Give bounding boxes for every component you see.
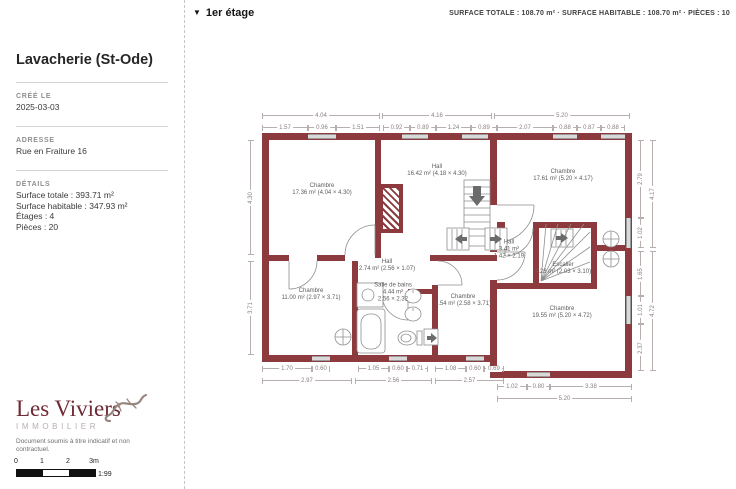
- dimension: 0.60: [466, 368, 484, 369]
- created-label: CRÉÉ LE: [16, 93, 168, 100]
- page-title: Lavacherie (St-Ode): [16, 52, 168, 68]
- dimension: 0.89: [410, 127, 436, 128]
- wall-segment: [597, 245, 625, 251]
- detail-line: Surface totale : 393.71 m²: [16, 190, 168, 201]
- room-label: Chambre9.54 m² (2.58 × 3.71): [435, 294, 491, 308]
- dimension: 1.05: [358, 368, 389, 369]
- dimension: 0.71: [407, 368, 428, 369]
- arrow-left-icon: [455, 234, 467, 244]
- details-list: Surface totale : 393.71 m²Surface habita…: [16, 190, 168, 232]
- window: [389, 356, 407, 361]
- vent-symbol: [551, 229, 573, 247]
- floor-selector[interactable]: ▼1er étage: [193, 7, 254, 19]
- dimension: 4.30: [250, 140, 251, 255]
- window: [601, 134, 625, 139]
- gecko-icon: [102, 391, 152, 425]
- room-label: Chambre11.00 m² (2.97 × 3.71): [281, 288, 340, 302]
- wall-segment: [490, 140, 497, 205]
- window: [312, 356, 330, 361]
- detail-line: Pièces : 20: [16, 222, 168, 233]
- dimension: 5.20: [497, 398, 632, 399]
- room-label: Hall2.74 m² (2.56 × 1.07): [359, 259, 415, 273]
- room-label: Salle de bains4.44 m²2.56 × 2.32: [374, 283, 412, 304]
- dimension: 0.60: [389, 368, 407, 369]
- wall-segment: [432, 255, 438, 261]
- dimension: 1.01: [640, 296, 641, 324]
- detail-line: Surface habitable : 347.93 m²: [16, 201, 168, 212]
- scale-tick: 3m: [89, 458, 99, 465]
- agency-logo: Les Viviers IMMOBILIER: [16, 397, 121, 431]
- surface-summary: SURFACE TOTALE : 108.70 m² · SURFACE HAB…: [449, 10, 730, 17]
- room-label: Hall16.42 m² (4.18 × 4.30): [407, 164, 467, 178]
- wall-segment: [533, 222, 595, 228]
- dimension: 0.88: [553, 127, 577, 128]
- arrow-right-icon: [556, 233, 568, 243]
- dimension: 2.56: [355, 380, 432, 381]
- dimension: 1.65: [640, 251, 641, 296]
- room-label: Chambre17.61 m² (5.20 × 4.17): [533, 169, 593, 183]
- dimension: 2.79: [640, 140, 641, 218]
- wall-segment: [490, 280, 497, 362]
- wall-segment: [430, 255, 497, 261]
- dimension: 0.89: [471, 127, 497, 128]
- wall-segment: [352, 261, 358, 355]
- wall-segment: [591, 222, 597, 283]
- window: [626, 218, 631, 248]
- scale-ticks: 0123m: [16, 458, 136, 467]
- dimension: 2.07: [497, 127, 553, 128]
- dimension: 1.51: [336, 127, 380, 128]
- room-label: Hall3.41 m²1.42 × 2.19: [494, 240, 524, 261]
- wall-segment: [262, 133, 269, 362]
- dimension: 1.70: [262, 368, 312, 369]
- vent-symbol: [447, 228, 469, 250]
- bathtub: [357, 309, 385, 353]
- dimension: 2.37: [640, 324, 641, 371]
- disclaimer-text: Document soumis à titre indicatif et non…: [16, 438, 148, 454]
- wall-segment: [497, 222, 505, 228]
- dimension: 2.57: [435, 380, 504, 381]
- chimney-shaft: [379, 184, 403, 233]
- window: [527, 372, 550, 377]
- toilet: [398, 331, 422, 345]
- door-arc: [345, 225, 375, 255]
- details-label: DÉTAILS: [16, 181, 168, 188]
- scale-bar-graphic: [16, 469, 96, 477]
- dimension: 1.24: [436, 127, 471, 128]
- divider: [16, 126, 168, 127]
- floor-label: 1er étage: [206, 7, 254, 19]
- wall-segment: [269, 255, 289, 261]
- window: [553, 134, 577, 139]
- top-bar: ▼1er étage SURFACE TOTALE : 108.70 m² · …: [185, 0, 736, 26]
- dimension: 0.96: [308, 127, 336, 128]
- dimension: 1.08: [435, 368, 466, 369]
- dimension: 1.57: [262, 127, 308, 128]
- room-label: Chambre19.55 m² (5.20 × 4.72): [532, 306, 592, 320]
- wall-segment: [625, 133, 632, 378]
- scale-tick: 0: [14, 458, 18, 465]
- dimension: 5.20: [494, 115, 630, 116]
- room-label: Escalier4.28 m² (2.03 × 3.10): [535, 262, 591, 276]
- dimension: 0.69: [484, 368, 504, 369]
- door-arc: [289, 261, 317, 289]
- dimension: 2.97: [262, 380, 352, 381]
- divider: [16, 82, 168, 83]
- scale-bar: 0123m 1:99: [16, 458, 136, 488]
- dimension: 0.60: [312, 368, 330, 369]
- window: [466, 356, 484, 361]
- dimension: 3.71: [250, 261, 251, 355]
- dimension: 0.88: [601, 127, 625, 128]
- sidebar: Lavacherie (St-Ode) CRÉÉ LE 2025-03-03 A…: [0, 0, 185, 489]
- dimension: 4.17: [652, 140, 653, 248]
- staircase: [464, 180, 490, 246]
- sink: [405, 307, 421, 321]
- wall-segment: [262, 355, 497, 362]
- scale-tick: 2: [66, 458, 70, 465]
- dimension: 4.16: [382, 115, 492, 116]
- scale-tick: 1: [40, 458, 44, 465]
- created-value: 2025-03-03: [16, 102, 168, 112]
- dimension: 1.02: [497, 386, 527, 387]
- wall-segment: [317, 255, 345, 261]
- room-label: Chambre17.36 m² (4.04 × 4.30): [292, 183, 352, 197]
- scale-ratio: 1:99: [98, 471, 112, 478]
- wall-segment: [497, 283, 597, 289]
- address-value: Rue en Fraiture 16: [16, 146, 168, 156]
- dimension: 4.04: [262, 115, 380, 116]
- detail-line: Étages : 4: [16, 211, 168, 222]
- chevron-down-icon: ▼: [193, 8, 201, 17]
- window: [308, 134, 336, 139]
- floorplan-document: { "header": { "triangle": "▼", "floor_la…: [0, 0, 736, 489]
- arrow-down-icon: [469, 186, 485, 206]
- window: [462, 134, 488, 139]
- door-arc: [438, 261, 462, 285]
- address-label: ADRESSE: [16, 137, 168, 144]
- dimension: 1.02: [640, 218, 641, 248]
- dimension: 3.38: [550, 386, 632, 387]
- dimension: 0.87: [577, 127, 601, 128]
- dimension: 4.72: [652, 251, 653, 371]
- wall-segment: [490, 371, 632, 378]
- dimension: 0.92: [383, 127, 410, 128]
- window: [402, 134, 428, 139]
- divider: [16, 170, 168, 171]
- window: [626, 296, 631, 324]
- dimension: 0.80: [527, 386, 550, 387]
